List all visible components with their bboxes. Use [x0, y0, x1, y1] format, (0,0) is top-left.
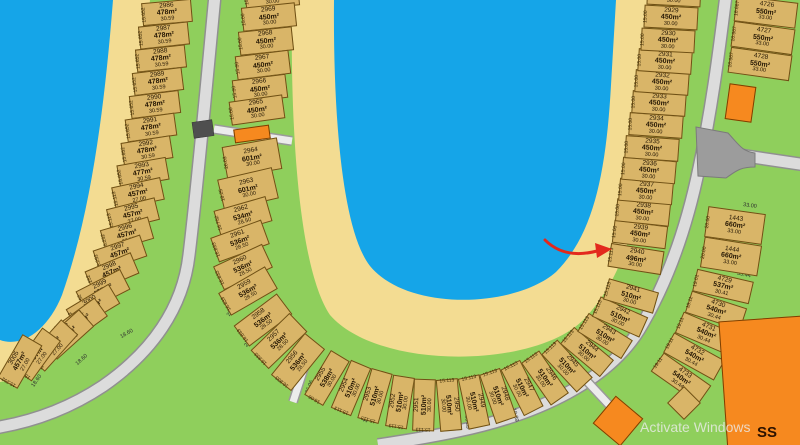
- plat-map: SS Activate Windows 2986478m²30.5915.652…: [0, 0, 800, 445]
- activate-windows-watermark: Activate Windows: [640, 419, 750, 435]
- red-arrow-annotation: [0, 0, 800, 445]
